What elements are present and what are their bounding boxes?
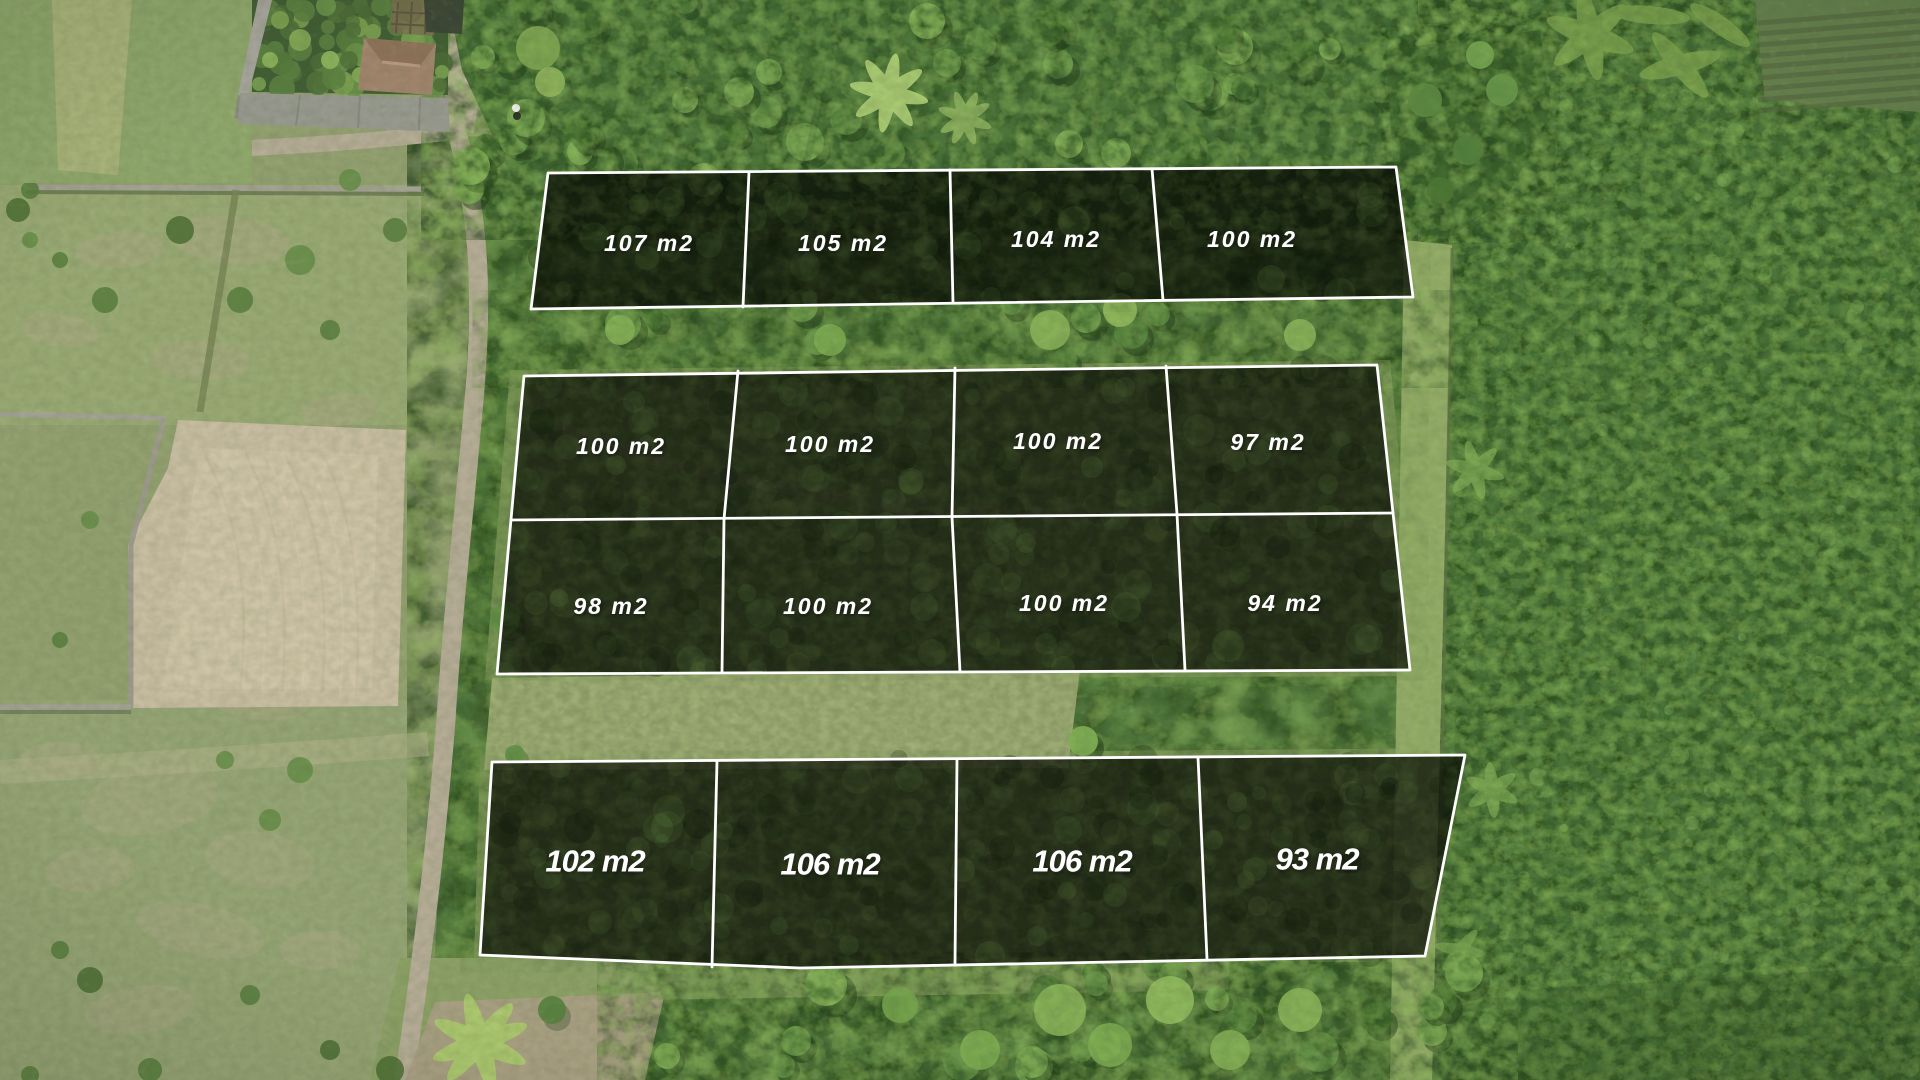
svg-text:100 m2: 100 m2 — [1019, 590, 1109, 616]
svg-text:107 m2: 107 m2 — [604, 230, 694, 256]
svg-text:100 m2: 100 m2 — [783, 593, 873, 619]
svg-text:105 m2: 105 m2 — [798, 230, 888, 256]
svg-text:106 m2: 106 m2 — [780, 847, 880, 882]
svg-text:94 m2: 94 m2 — [1247, 590, 1322, 616]
svg-text:97 m2: 97 m2 — [1230, 429, 1305, 455]
svg-text:102 m2: 102 m2 — [545, 844, 645, 879]
svg-text:104 m2: 104 m2 — [1011, 226, 1101, 252]
svg-text:100 m2: 100 m2 — [1207, 226, 1297, 252]
svg-text:100 m2: 100 m2 — [785, 431, 875, 457]
svg-text:100 m2: 100 m2 — [1013, 428, 1103, 454]
svg-text:93 m2: 93 m2 — [1276, 842, 1360, 877]
svg-text:98 m2: 98 m2 — [573, 593, 648, 619]
svg-text:106 m2: 106 m2 — [1032, 844, 1132, 879]
svg-text:100 m2: 100 m2 — [576, 433, 666, 459]
